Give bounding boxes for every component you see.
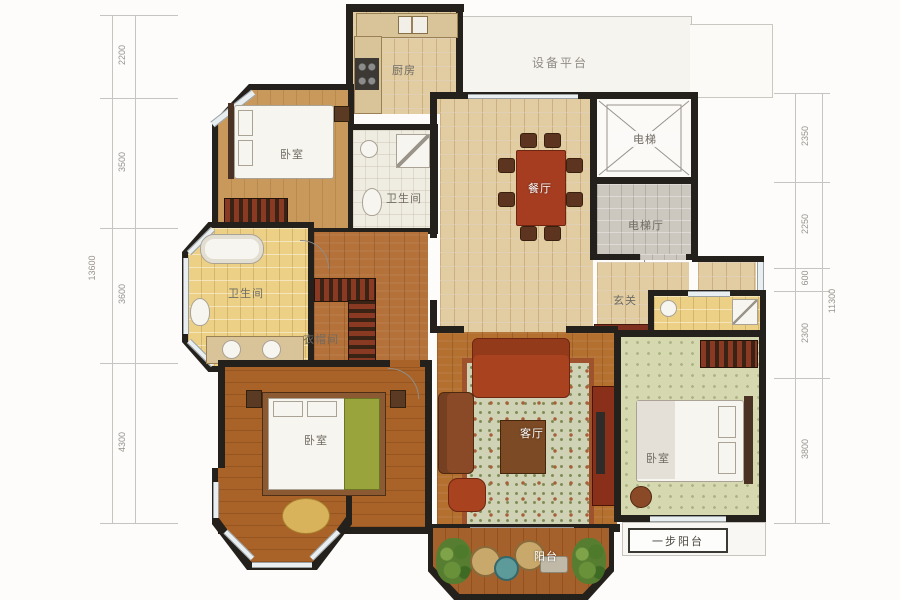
- foyer-nook-floor: [698, 262, 756, 290]
- nightstand: [246, 390, 262, 408]
- dim-line-right-outer: [822, 93, 823, 523]
- dim-right-seg-3: 2300: [800, 313, 810, 353]
- room-label-living: 客厅: [508, 425, 556, 441]
- room-label-dining: 餐厅: [517, 180, 563, 196]
- dim-tick: [774, 93, 830, 94]
- round-table: [494, 556, 519, 581]
- sink-icon: [262, 340, 281, 359]
- bay-window: [183, 258, 189, 334]
- dim-tick: [100, 523, 178, 524]
- bay-window: [252, 562, 312, 568]
- dim-tick: [774, 182, 830, 183]
- dim-tick: [100, 98, 178, 99]
- dim-left-seg-2: 3600: [117, 274, 127, 314]
- equipment-platform-extension: [690, 24, 773, 98]
- round-rug: [282, 498, 330, 534]
- wall: [430, 92, 437, 238]
- dining-chair: [544, 226, 561, 241]
- bed-sw-quilt: [344, 398, 380, 490]
- dim-left-seg-1: 3500: [117, 142, 127, 182]
- dim-line-left-outer: [112, 15, 113, 523]
- armchair-brown: [438, 392, 474, 474]
- dim-left-seg-0: 2200: [117, 35, 127, 75]
- dim-right-seg-1: 2250: [800, 204, 810, 244]
- dim-right-seg-4: 3800: [800, 429, 810, 469]
- sink-icon: [222, 340, 241, 359]
- pillow: [273, 401, 303, 417]
- dining-chair: [544, 133, 561, 148]
- bay-window: [213, 482, 219, 518]
- room-label-elevator: 电梯: [611, 131, 679, 147]
- pillow: [718, 406, 736, 438]
- dining-chair: [498, 158, 515, 173]
- dim-tick: [774, 523, 830, 524]
- sofa-red: [472, 338, 570, 398]
- wall: [430, 326, 464, 333]
- dim-tick: [100, 228, 178, 229]
- pillow: [307, 401, 337, 417]
- room-label-elevator-hall: 电梯厅: [610, 217, 682, 233]
- room-label-bedroom-sw: 卧室: [292, 432, 340, 448]
- kitchen-sink-icon: [398, 16, 428, 34]
- wall: [346, 4, 464, 12]
- bed-se-blanket: [637, 401, 675, 479]
- dining-chair: [566, 192, 583, 207]
- window: [757, 262, 764, 290]
- room-label-equipment-platform: 设备平台: [500, 54, 620, 71]
- dim-line-left-inner: [135, 15, 136, 523]
- toilet-icon: [190, 298, 210, 326]
- stove-icon: [355, 58, 379, 90]
- bathtub-icon: [200, 234, 264, 264]
- wardrobe-cloakroom: [314, 278, 376, 302]
- room-label-cloakroom: 衣帽间: [294, 331, 348, 347]
- dining-chair: [520, 133, 537, 148]
- bed-headboard: [744, 396, 753, 484]
- sink-icon: [660, 300, 677, 317]
- dim-right-seg-0: 2350: [800, 116, 810, 156]
- shower-icon: [396, 134, 430, 168]
- tv-icon: [596, 412, 605, 474]
- dining-chair: [566, 158, 583, 173]
- dim-left-total: 13600: [87, 248, 97, 288]
- dim-right-total: 11300: [827, 281, 837, 321]
- plant-icon: [436, 538, 472, 584]
- room-label-foyer: 玄关: [600, 292, 650, 308]
- room-label-balcony: 阳台: [522, 548, 570, 564]
- pillow: [718, 442, 736, 474]
- dining-chair: [498, 192, 515, 207]
- nightstand: [390, 390, 406, 408]
- sink-icon: [360, 140, 378, 158]
- wall: [350, 124, 438, 130]
- pillow: [238, 110, 253, 136]
- step-balcony-label-box: 一步阳台: [628, 528, 728, 553]
- wardrobe-se: [700, 340, 758, 368]
- pillow: [238, 140, 253, 166]
- plant-icon: [572, 538, 606, 584]
- wardrobe-cloakroom: [348, 300, 376, 364]
- room-label-bedroom-nw: 卧室: [268, 146, 316, 162]
- dim-line-right-inner: [795, 93, 796, 523]
- room-label-step-balcony: 一步阳台: [652, 533, 704, 549]
- room-label-bathroom-top: 卫生间: [378, 190, 430, 206]
- nightstand: [334, 106, 350, 122]
- dim-tick: [100, 363, 178, 364]
- room-label-bathroom-master: 卫生间: [220, 285, 272, 301]
- window: [468, 94, 578, 99]
- dim-tick: [774, 378, 830, 379]
- wall: [566, 326, 618, 333]
- room-label-bedroom-se: 卧室: [634, 450, 682, 466]
- ottoman-red: [448, 478, 486, 512]
- room-label-kitchen: 厨房: [380, 62, 428, 78]
- dining-chair: [520, 226, 537, 241]
- floorplan-canvas: 2200 3500 3600 4300 13600 2350 2250 600 …: [0, 0, 900, 600]
- door-gap: [390, 360, 420, 368]
- window: [688, 291, 730, 297]
- shower-icon: [732, 299, 758, 325]
- dim-left-seg-3: 4300: [117, 422, 127, 462]
- side-table: [630, 486, 652, 508]
- dim-tick: [100, 15, 178, 16]
- dim-right-seg-2: 600: [800, 258, 810, 298]
